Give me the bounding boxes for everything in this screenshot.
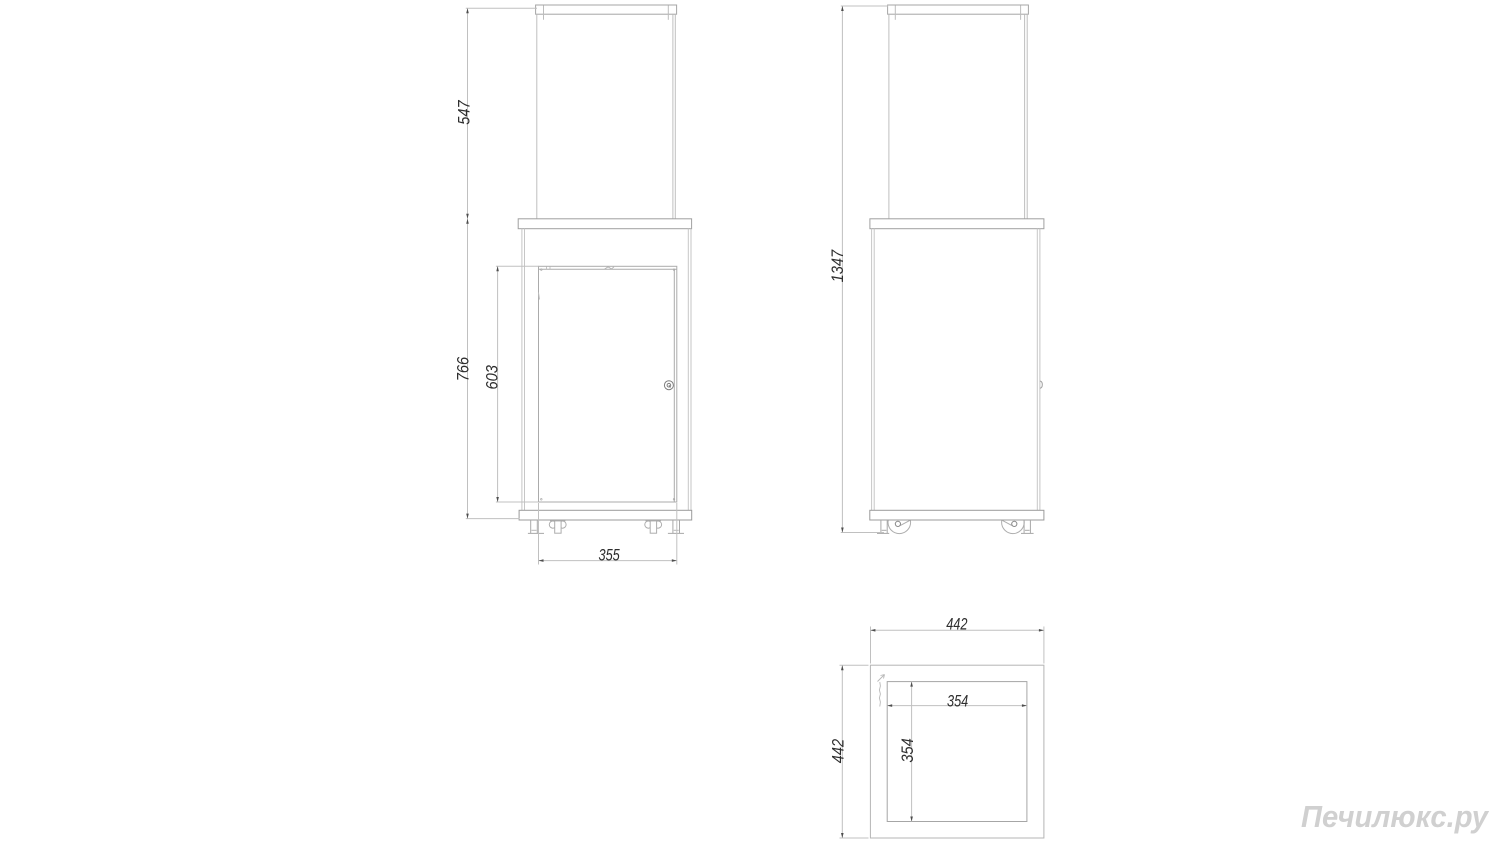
svg-text:442: 442 bbox=[829, 739, 847, 764]
svg-text:355: 355 bbox=[599, 546, 621, 565]
svg-text:547: 547 bbox=[455, 99, 473, 124]
svg-text:442: 442 bbox=[946, 615, 968, 634]
svg-text:603: 603 bbox=[484, 365, 502, 390]
svg-text:354: 354 bbox=[947, 692, 968, 711]
svg-text:Печилюкс.ру: Печилюкс.ру bbox=[1301, 799, 1490, 834]
svg-text:1347: 1347 bbox=[829, 249, 847, 283]
svg-text:766: 766 bbox=[454, 357, 472, 382]
svg-text:354: 354 bbox=[899, 738, 917, 763]
